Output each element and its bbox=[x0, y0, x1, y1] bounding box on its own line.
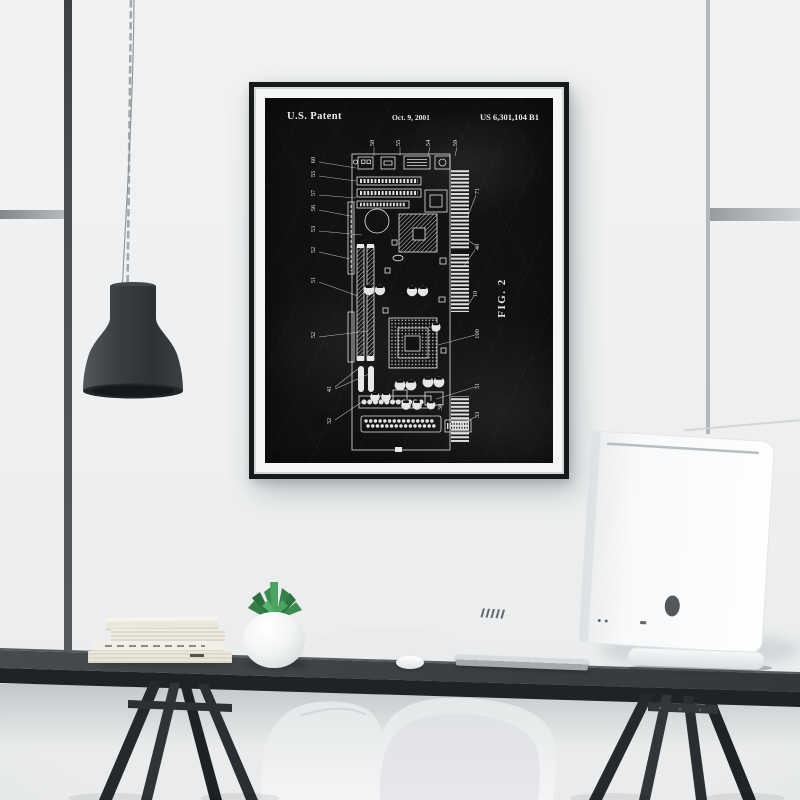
patent-header: U.S. Patent Oct. 9, 2001 US 6,301,104 B1 bbox=[265, 111, 553, 122]
ref-numeral: 30 bbox=[437, 404, 444, 411]
ref-numeral: 55 bbox=[310, 171, 317, 178]
ref-numeral: 51 bbox=[310, 277, 317, 284]
poster-print: U.S. Patent Oct. 9, 2001 US 6,301,104 B1 bbox=[265, 98, 553, 463]
ref-numeral: 56 bbox=[310, 204, 317, 211]
patent-poster-frame: U.S. Patent Oct. 9, 2001 US 6,301,104 B1 bbox=[249, 82, 569, 479]
room-scene: U.S. Patent Oct. 9, 2001 US 6,301,104 B1 bbox=[0, 0, 800, 800]
ref-numeral: 40 bbox=[474, 244, 481, 251]
ref-numeral: 52 bbox=[310, 332, 317, 339]
ref-numeral: 58 bbox=[369, 140, 376, 147]
patent-number: US 6,301,104 B1 bbox=[480, 111, 539, 122]
ref-numeral: 32 bbox=[326, 418, 333, 425]
poster-mat: U.S. Patent Oct. 9, 2001 US 6,301,104 B1 bbox=[256, 89, 562, 472]
patent-title: U.S. Patent bbox=[287, 111, 342, 122]
ref-numeral: 59 bbox=[452, 140, 459, 147]
edge-connectors bbox=[451, 170, 469, 442]
ref-numeral: 41 bbox=[326, 386, 333, 393]
ref-numeral: 100 bbox=[474, 329, 481, 339]
ref-numeral: 33 bbox=[474, 412, 481, 419]
ref-numeral: 53 bbox=[310, 226, 317, 233]
ref-numeral: 60 bbox=[310, 157, 317, 164]
ref-numeral: 71 bbox=[474, 188, 481, 195]
figure-label: FIG. 2 bbox=[496, 278, 508, 318]
ref-numeral: 54 bbox=[425, 139, 432, 146]
poster-bevel: U.S. Patent Oct. 9, 2001 US 6,301,104 B1 bbox=[254, 87, 564, 474]
ref-numeral: 31 bbox=[474, 383, 481, 390]
ref-numeral: 55 bbox=[395, 140, 402, 147]
patent-diagram: 58 55 54 59 60 55 57 56 53 52 51 52 bbox=[265, 98, 553, 463]
patent-date: Oct. 9, 2001 bbox=[392, 111, 430, 122]
ref-numeral: 10 bbox=[472, 291, 479, 298]
ref-numeral: 57 bbox=[310, 189, 317, 196]
ref-numeral: 52 bbox=[310, 247, 317, 254]
